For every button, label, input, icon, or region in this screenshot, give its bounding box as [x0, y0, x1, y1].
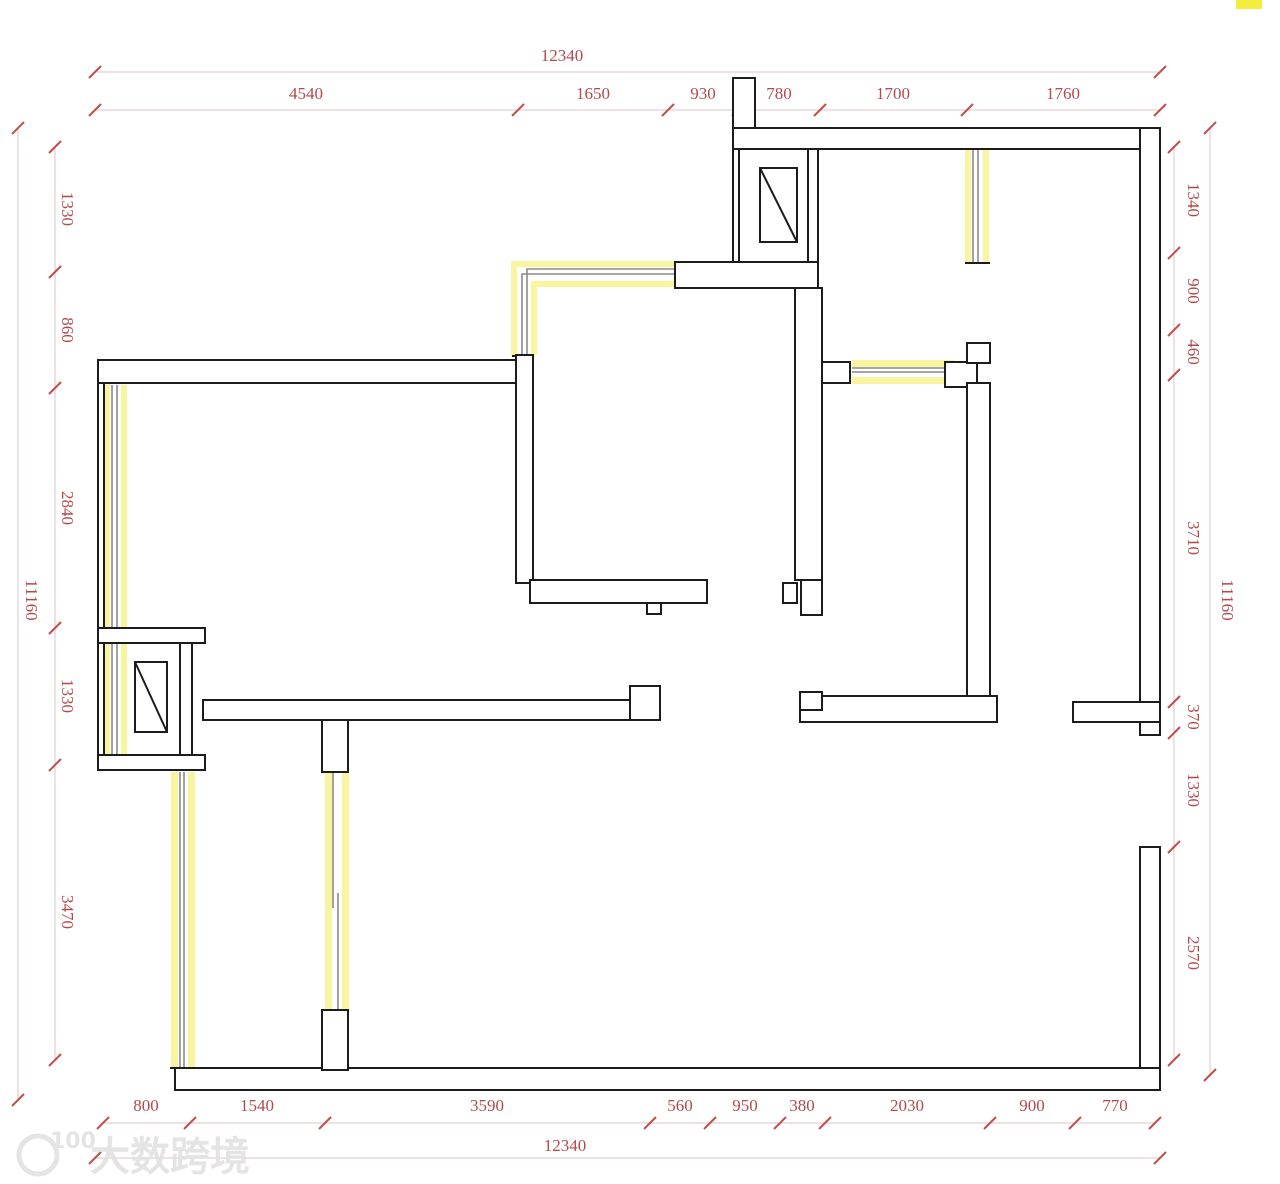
wall-center-bottom — [530, 580, 707, 603]
dim-bottom-overall: 12340 — [544, 1136, 587, 1155]
dim-top-seg-2: 930 — [690, 84, 716, 103]
wall-balcony-stub — [322, 720, 348, 772]
wall-left-exterior-b — [98, 643, 104, 755]
wall-center-bottom-tab — [647, 603, 661, 614]
window-highlight — [511, 261, 517, 357]
wall-shaft-right — [808, 149, 818, 263]
window-highlight — [511, 261, 676, 267]
dim-left-seg-0: 1330 — [58, 192, 77, 226]
window-highlight — [531, 281, 537, 355]
dim-right-seg-5: 1330 — [1184, 773, 1203, 807]
wall-bay-bottom-slab — [98, 755, 205, 770]
window-highlight — [171, 772, 178, 1068]
dim-top-seg-3: 780 — [766, 84, 792, 103]
wall-midroom-bottom — [800, 696, 997, 722]
window-glass-lines — [112, 150, 990, 1068]
window-highlight — [965, 150, 971, 262]
window-highlight — [188, 772, 195, 1068]
window-highlight — [121, 644, 127, 754]
dimension-lines — [18, 72, 1210, 1158]
floor-plan-canvas: 12340 4540 1650 930 780 1700 1760 800 15… — [0, 0, 1280, 1184]
dim-bottom-seg-6: 2030 — [890, 1096, 924, 1115]
wall-shaft-left — [733, 149, 739, 263]
dim-bottom-seg-7: 900 — [1019, 1096, 1045, 1115]
wall-bay-right — [180, 643, 192, 755]
dim-left-seg-1: 860 — [58, 317, 77, 343]
window-highlight — [983, 150, 989, 262]
window-highlight — [342, 772, 349, 1010]
dim-bottom-seg-5: 380 — [789, 1096, 815, 1115]
dim-left-seg-3: 1330 — [58, 679, 77, 713]
dim-bottom-seg-1: 1540 — [240, 1096, 274, 1115]
wall-central-thick — [795, 288, 822, 580]
corner-yellow-mark — [1236, 0, 1262, 9]
wall-left-exterior-a — [98, 383, 104, 628]
wall-bottom-exterior — [175, 1068, 1160, 1090]
floor-plan-drawing: 12340 4540 1650 930 780 1700 1760 800 15… — [0, 0, 1280, 1184]
dim-left-seg-2: 2840 — [58, 491, 77, 525]
dim-right-seg-0: 1340 — [1184, 183, 1203, 217]
dim-top-overall: 12340 — [541, 46, 584, 65]
window-highlights — [104, 150, 989, 1068]
window-highlight — [121, 385, 127, 627]
dim-bottom-seg-2: 3590 — [470, 1096, 504, 1115]
wall-right-exterior-upper — [1140, 128, 1160, 702]
wall-chimney — [733, 78, 755, 128]
wall-right-stub — [1140, 722, 1160, 735]
dim-top-seg-5: 1760 — [1046, 84, 1080, 103]
wall-center-left — [516, 355, 533, 583]
dim-left-seg-4: 3470 — [58, 895, 77, 929]
dim-bottom-seg-0: 800 — [133, 1096, 159, 1115]
wall-left-room-top — [98, 360, 533, 383]
dim-top-seg-0: 4540 — [289, 84, 323, 103]
wall-top-right — [733, 128, 1160, 149]
wall-balcony-mid-block — [322, 1010, 348, 1070]
wall-central-foot — [801, 580, 822, 615]
wall-bay-top-slab — [98, 628, 205, 643]
window-highlight — [531, 281, 676, 287]
wall-midroom-step — [967, 343, 990, 363]
window-highlight — [852, 377, 953, 384]
watermark-text: 大数跨境 — [90, 1134, 250, 1180]
wall-shaft-bottom-slab — [675, 262, 818, 288]
watermark: 100 大数跨境 — [19, 1129, 250, 1180]
dim-top-seg-4: 1700 — [876, 84, 910, 103]
wall-central-notch — [783, 583, 797, 603]
wall-midroom-top-stub — [822, 362, 850, 383]
wall-midroom-right — [967, 383, 990, 710]
dim-right-seg-1: 900 — [1184, 278, 1203, 304]
dim-right-seg-6: 2570 — [1184, 936, 1203, 970]
dim-right-overall: 11160 — [1218, 579, 1237, 620]
wall-midroom-bottom-step — [800, 692, 822, 710]
wall-right-exterior-lower — [1140, 847, 1160, 1090]
dim-bottom-seg-8: 770 — [1102, 1096, 1128, 1115]
dim-bottom-seg-4: 950 — [732, 1096, 758, 1115]
wall-left-room-bottom — [203, 700, 630, 720]
window-highlight — [325, 772, 332, 1010]
dim-left-overall: 11160 — [22, 579, 41, 620]
walls — [98, 78, 1160, 1090]
wall-left-room-bottom-cap — [630, 686, 660, 720]
dim-right-seg-4: 370 — [1184, 704, 1203, 730]
dim-right-seg-3: 3710 — [1184, 521, 1203, 555]
wall-right-return — [1073, 702, 1160, 722]
dim-bottom-seg-3: 560 — [667, 1096, 693, 1115]
dim-top-seg-1: 1650 — [576, 84, 610, 103]
window-highlight — [852, 360, 953, 367]
dim-right-seg-2: 460 — [1184, 339, 1203, 365]
